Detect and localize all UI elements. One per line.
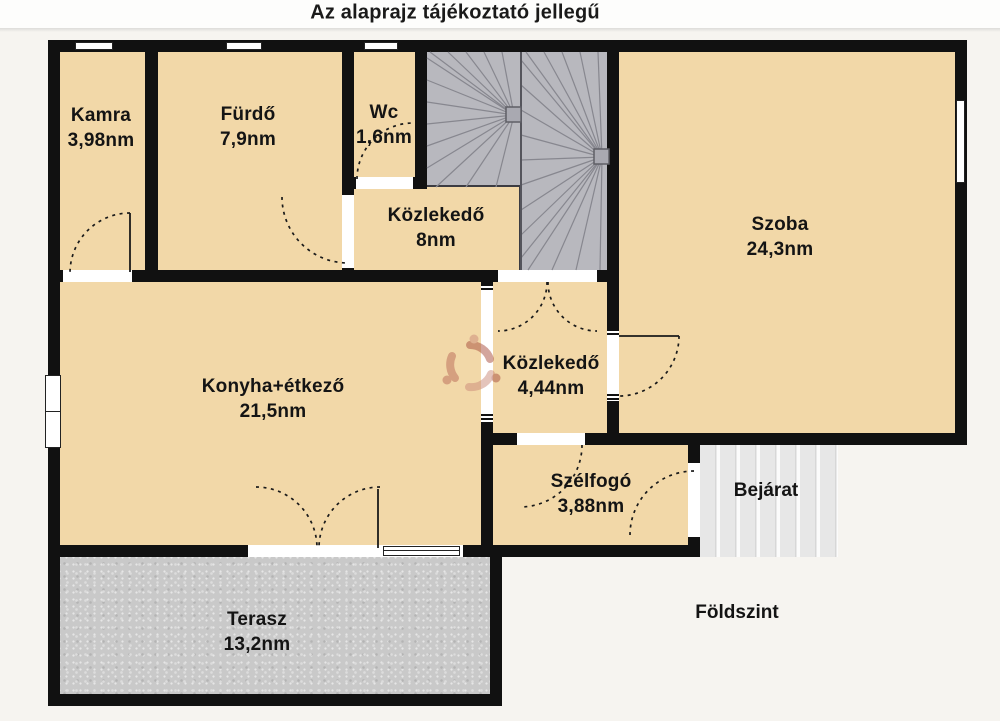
stairs-left-treads <box>427 52 514 187</box>
room-area: 24,3nm <box>747 237 814 262</box>
room-name: Szoba <box>747 212 814 237</box>
room-area: 13,2nm <box>224 632 291 657</box>
room-area: 3,98nm <box>68 128 135 153</box>
room-label-wc: Wc 1,6nm <box>356 100 412 150</box>
room-name: Közlekedő <box>503 351 600 376</box>
room-area: 8nm <box>388 228 485 253</box>
room-area: 3,88nm <box>551 494 632 519</box>
room-name: Közlekedő <box>388 203 485 228</box>
entrance-label: Bejárat <box>734 480 798 502</box>
entrance-door-arc <box>630 471 694 535</box>
room-name: Konyha+étkező <box>202 374 345 399</box>
stairs-landing-post-left <box>506 107 521 122</box>
room-label-furdo: Fürdő 7,9nm <box>220 102 276 152</box>
room-name: Kamra <box>68 103 135 128</box>
double-door-right-arc <box>548 282 597 331</box>
room-name: Terasz <box>224 607 291 632</box>
furdo-door-arc <box>282 197 348 263</box>
room-label-terasz: Terasz 13,2nm <box>224 607 291 657</box>
terrace-door-left-arc <box>256 487 317 548</box>
double-door-left-arc <box>498 282 547 331</box>
room-label-konyha: Konyha+étkező 21,5nm <box>202 374 345 424</box>
kamra-door-arc <box>70 213 130 273</box>
terrace-door-right-arc <box>319 487 380 548</box>
room-label-kozlekedo-4: Közlekedő 4,44nm <box>503 351 600 401</box>
room-area: 1,6nm <box>356 125 412 150</box>
room-label-szelfogo: Szélfogó 3,88nm <box>551 469 632 519</box>
plan-linework <box>0 0 1000 721</box>
room-label-szoba: Szoba 24,3nm <box>747 212 814 262</box>
room-area: 4,44nm <box>503 376 600 401</box>
floor-plan: Az alaprajz tájékoztató jellegű <box>0 0 1000 721</box>
room-label-kozlekedo-8: Közlekedő 8nm <box>388 203 485 253</box>
stairs-landing-post-right <box>594 149 609 164</box>
watermark-logo <box>443 335 501 388</box>
szoba-door-arc <box>619 336 679 396</box>
room-label-kamra: Kamra 3,98nm <box>68 103 135 153</box>
room-area: 7,9nm <box>220 127 276 152</box>
floor-level-label: Földszint <box>695 602 778 624</box>
room-area: 21,5nm <box>202 399 345 424</box>
room-name: Szélfogó <box>551 469 632 494</box>
room-name: Fürdő <box>220 102 276 127</box>
room-name: Wc <box>356 100 412 125</box>
stairs-right-treads <box>521 52 602 270</box>
